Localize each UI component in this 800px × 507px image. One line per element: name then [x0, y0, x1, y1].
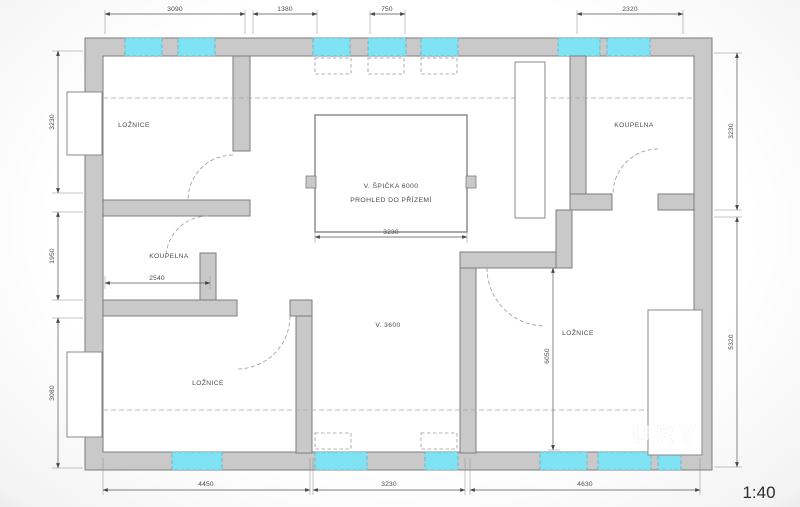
room-label-bathroom-top-right: KOUPELNA [614, 122, 654, 129]
room-label-bathroom-left: KOUPELNA [149, 253, 189, 260]
wardrobe [515, 62, 545, 218]
window [315, 452, 367, 470]
dim-label: 2540 [149, 275, 165, 282]
void-label-line1: V. ŠPIČKA 6000 [364, 181, 419, 190]
window [558, 38, 600, 56]
interior-wall [103, 200, 250, 216]
interior-wall [200, 253, 216, 300]
interior-wall [570, 194, 612, 210]
dim-label: 750 [381, 6, 393, 13]
void-tab [306, 176, 316, 188]
void-label-line2: PROHLED DO PŘÍZEMÍ [350, 195, 432, 204]
window [421, 38, 458, 56]
wall-niche [67, 92, 102, 155]
dim-label: 3090 [167, 6, 183, 13]
dim-label: 4450 [198, 481, 214, 488]
dim-label: 3080 [49, 385, 56, 401]
room-label-bedroom-right: LOŽNICE [562, 328, 594, 337]
interior-wall [233, 56, 250, 151]
window [425, 452, 458, 470]
window [598, 452, 651, 470]
dim-label: 3230 [49, 114, 56, 130]
dim-label: 1950 [49, 248, 56, 264]
interior-wall [290, 300, 312, 316]
floor-plan-canvas: V. ŠPIČKA 6000 PROHLED DO PŘÍZEMÍ LOŽNIC… [0, 0, 800, 507]
wall-niche [67, 352, 102, 437]
interior-wall [296, 316, 312, 453]
hall-height-label: V. 3600 [375, 322, 400, 329]
room-label-bedroom-bottom-left: LOŽNICE [192, 378, 224, 387]
interior-wall [103, 300, 237, 316]
dim-label: 5320 [728, 334, 735, 350]
dim-label: 3230 [383, 229, 399, 236]
interior-wall [658, 194, 694, 210]
window [313, 38, 350, 56]
dim-label: 3230 [381, 481, 397, 488]
window [172, 452, 222, 470]
interior-wall [556, 210, 572, 268]
void-tab [466, 176, 476, 188]
dim-label: 4630 [577, 481, 593, 488]
interior-wall [460, 252, 556, 268]
interior-wall [570, 56, 586, 210]
dim-label: 1380 [277, 6, 293, 13]
window [178, 38, 215, 56]
room-label-bedroom-top-left: LOŽNICE [118, 120, 150, 129]
watermark: URY [632, 421, 702, 449]
window [125, 38, 162, 56]
dim-label: 6050 [544, 348, 551, 364]
window [607, 38, 650, 56]
floor-plan-drawing: V. ŠPIČKA 6000 PROHLED DO PŘÍZEMÍ LOŽNIC… [0, 0, 800, 507]
dim-label: 2320 [622, 6, 638, 13]
void-opening [315, 115, 467, 232]
window [540, 452, 587, 470]
dim-label: 3230 [728, 123, 735, 139]
window [368, 38, 406, 56]
interior-wall [460, 268, 476, 453]
scale-label: 1:40 [742, 483, 775, 502]
